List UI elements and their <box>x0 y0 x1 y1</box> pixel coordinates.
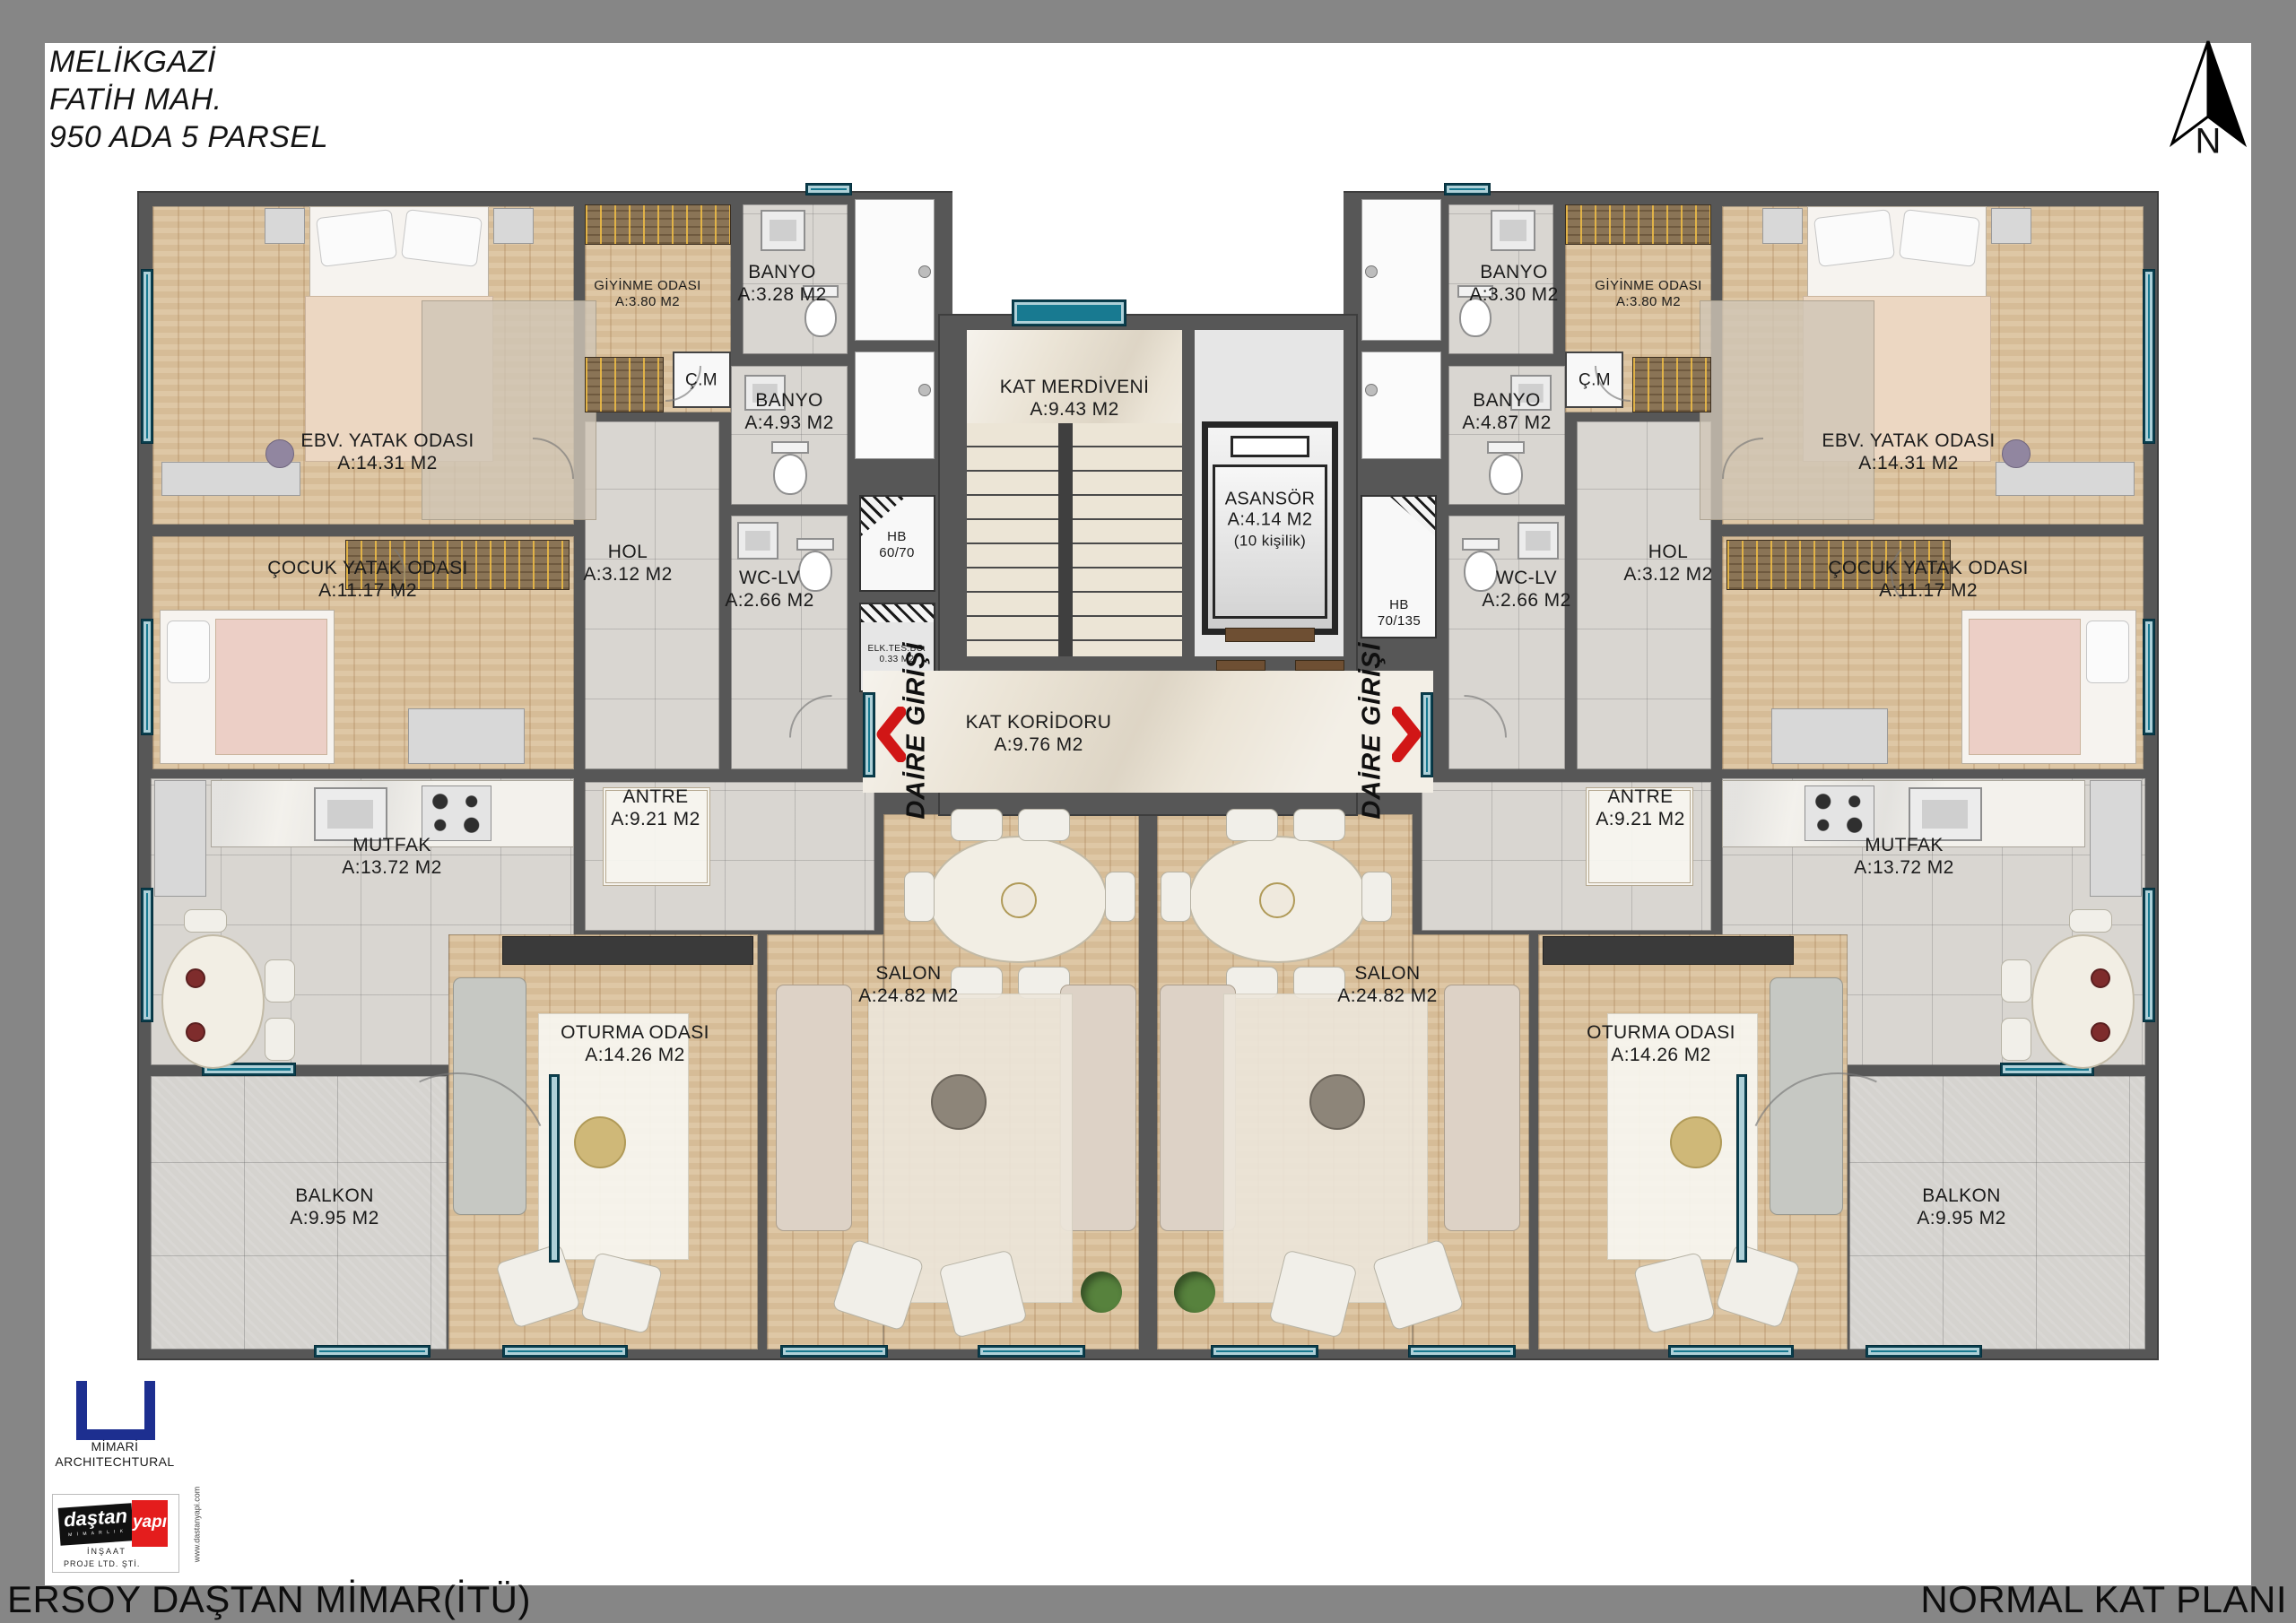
label-child-right: ÇOCUK YATAK ODASIA:11.17 M2 <box>1828 557 2028 602</box>
label-dressing-right: GİYİNME ODASIA:3.80 M2 <box>1595 278 1701 310</box>
plate-icon <box>186 968 205 988</box>
dining-table-kitchen-right <box>2031 934 2135 1069</box>
chair <box>265 1018 295 1061</box>
window-master-right <box>2143 269 2155 444</box>
footer-plan-name: NORMAL KAT PLANI <box>1920 1578 2287 1621</box>
label-stairs: KAT MERDİVENİA:9.43 M2 <box>1000 376 1150 421</box>
window-bath-right <box>1444 183 1491 195</box>
dastan-logo-line1: İNŞAAT <box>87 1547 126 1556</box>
stove-icon <box>422 785 491 841</box>
plant-icon <box>1081 1271 1122 1313</box>
label-salon-right: SALONA:24.82 M2 <box>1337 962 1437 1007</box>
stair-divider <box>1058 423 1073 656</box>
coffee-table-salon-right <box>1309 1074 1365 1130</box>
window-living-right <box>1668 1345 1794 1358</box>
kitchen-sink-icon <box>314 787 387 841</box>
blanket-child-left <box>215 619 327 755</box>
label-cm-right: Ç.M <box>1578 369 1611 392</box>
dastan-logo: daştan M İ M A R L I K yapı www.dastanya… <box>52 1494 179 1573</box>
window-child-left <box>141 619 153 735</box>
kitchen-sink-icon <box>1909 787 1982 841</box>
toilet-icon <box>1462 538 1500 551</box>
closet-dressing-right-top <box>1565 204 1711 245</box>
label-shaft-hb-right: HB70/135 <box>1378 597 1421 629</box>
landing-sill-2 <box>1295 660 1344 671</box>
chair <box>2001 959 2031 1002</box>
nightstand <box>265 208 305 244</box>
elevator-door-sill <box>1225 628 1315 642</box>
shaft-elk-left-hatch <box>861 604 934 622</box>
label-elevator: ASANSÖRA:4.14 M2(10 kişilik) <box>1225 490 1316 551</box>
label-bath2-right: BANYOA:4.87 M2 <box>1462 389 1551 434</box>
chair <box>2069 909 2112 933</box>
label-dressing-left: GİYİNME ODASIA:3.80 M2 <box>594 278 700 310</box>
window-bath-left <box>805 183 852 195</box>
plant-icon <box>1174 1271 1215 1313</box>
plate-icon <box>2091 1022 2110 1042</box>
sink-icon <box>1518 522 1559 560</box>
toilet-icon <box>796 538 834 551</box>
entrance-arrow-right-icon <box>1392 707 1422 762</box>
pillow <box>167 621 210 683</box>
pillow <box>2086 621 2129 683</box>
building-notch <box>952 191 1344 316</box>
shower-head-icon <box>918 384 931 396</box>
desk-child-left <box>408 708 525 764</box>
pillow <box>401 209 483 267</box>
window-balcony-front-left <box>314 1345 430 1358</box>
sofa-salon-left-1 <box>776 985 852 1231</box>
label-child-left: ÇOCUK YATAK ODASIA:11.17 M2 <box>267 557 467 602</box>
label-corridor: KAT KORİDORUA:9.76 M2 <box>966 711 1112 756</box>
toilet-icon <box>1489 454 1523 495</box>
label-living-right: OTURMA ODASIA:14.26 M2 <box>1587 1021 1735 1066</box>
window-salon-right-1 <box>1408 1345 1516 1358</box>
dastan-logo-red-text: yapı <box>132 1500 168 1545</box>
blanket-child-right <box>1969 619 2081 755</box>
balcony-door-left <box>549 1074 560 1263</box>
label-cm-left: Ç.M <box>685 369 717 392</box>
chair <box>265 959 295 1002</box>
pillow <box>1813 209 1895 267</box>
chair <box>904 872 935 922</box>
shower-head-icon <box>918 265 931 278</box>
window-salon-right-2 <box>1211 1345 1318 1358</box>
label-bath1-left: BANYOA:3.28 M2 <box>737 261 826 306</box>
toilet-icon <box>1487 441 1525 454</box>
label-master-right: EBV. YATAK ODASIA:14.31 M2 <box>1822 430 1995 474</box>
stair-window <box>1012 299 1126 326</box>
dastan-logo-line2: PROJE LTD. ŞTİ. <box>64 1559 140 1568</box>
sink-icon <box>761 210 805 251</box>
toilet-icon <box>771 441 809 454</box>
room-hall-right <box>1577 421 1711 769</box>
window-master-left <box>141 269 153 444</box>
title-line-3: 950 ADA 5 PARSEL <box>49 120 328 155</box>
label-bath1-right: BANYOA:3.30 M2 <box>1469 261 1558 306</box>
landing-sill-1 <box>1216 660 1265 671</box>
pouf <box>2002 439 2031 468</box>
nightstand <box>1762 208 1803 244</box>
dining-table-kitchen-left <box>161 934 265 1069</box>
label-kitchen-right: MUTFAKA:13.72 M2 <box>1854 834 1953 879</box>
chair <box>1226 809 1278 841</box>
stove-icon <box>1805 785 1874 841</box>
centerpiece <box>1259 882 1295 918</box>
title-line-2: FATİH MAH. <box>49 82 222 117</box>
shower-right-2 <box>1361 352 1441 459</box>
window-kitchen-right <box>2143 888 2155 1022</box>
mimari-logo-text: MİMARİARCHITECHTURAL <box>55 1439 174 1470</box>
chair <box>1105 872 1135 922</box>
chair <box>184 909 227 933</box>
plate-icon <box>2091 968 2110 988</box>
dastan-logo-red: yapı <box>132 1500 168 1547</box>
fridge-icon <box>2090 780 2142 897</box>
chair <box>1293 809 1345 841</box>
label-entrance-left: DAİRE GİRİŞİ <box>902 642 932 819</box>
stair-flight-left <box>967 423 1058 656</box>
sink-icon <box>1491 210 1535 251</box>
label-wc-left: WC-LVA:2.66 M2 <box>725 567 813 612</box>
window-salon-left-2 <box>978 1345 1085 1358</box>
room-hall-left <box>585 421 719 769</box>
label-entry-left: ANTREA:9.21 M2 <box>611 785 700 830</box>
north-label: N <box>2196 122 2222 162</box>
window-balcony-front-right <box>1865 1345 1982 1358</box>
label-shaft-hb-left: HB60/70 <box>879 529 915 561</box>
dastan-logo-black: daştan M İ M A R L I K <box>58 1503 135 1546</box>
entrance-arrow-left-icon <box>875 707 906 762</box>
chair <box>1161 872 1191 922</box>
sofa-salon-right-1 <box>1444 985 1520 1231</box>
label-hall-left: HOLA:3.12 M2 <box>583 541 672 586</box>
desk-child-right <box>1771 708 1888 764</box>
window-living-left <box>502 1345 628 1358</box>
tv-unit-left <box>502 936 753 965</box>
stair-flight-right <box>1073 423 1182 656</box>
nightstand <box>1991 208 2031 244</box>
label-bath2-left: BANYOA:4.93 M2 <box>744 389 833 434</box>
sink-icon <box>737 522 778 560</box>
pillow <box>1899 209 1980 267</box>
label-entrance-right: DAİRE GİRİŞİ <box>1358 642 1387 819</box>
coffee-table-salon-left <box>931 1074 987 1130</box>
pillow <box>316 209 397 267</box>
label-entry-right: ANTREA:9.21 M2 <box>1596 785 1684 830</box>
label-balcony-left: BALKONA:9.95 M2 <box>290 1185 378 1229</box>
chair <box>1018 809 1070 841</box>
shower-left-2 <box>855 352 935 459</box>
tv-unit-right <box>1543 936 1794 965</box>
label-wc-right: WC-LVA:2.66 M2 <box>1482 567 1570 612</box>
mimari-logo <box>76 1381 155 1440</box>
label-balcony-right: BALKONA:9.95 M2 <box>1917 1185 2005 1229</box>
window-child-right <box>2143 619 2155 735</box>
corridor <box>863 671 1433 793</box>
chair <box>2001 1018 2031 1061</box>
elevator-counterweight <box>1231 436 1309 457</box>
dastan-logo-web: www.dastanyapi.com <box>192 1487 201 1563</box>
centerpiece <box>1001 882 1037 918</box>
pouf <box>265 439 294 468</box>
label-kitchen-left: MUTFAKA:13.72 M2 <box>342 834 441 879</box>
page: MELİKGAZİ FATİH MAH. 950 ADA 5 PARSEL N <box>0 0 2296 1623</box>
label-salon-left: SALONA:24.82 M2 <box>858 962 958 1007</box>
plate-icon <box>186 1022 205 1042</box>
window-salon-left-1 <box>780 1345 888 1358</box>
coffee-table-living-left <box>574 1116 626 1168</box>
title-line-1: MELİKGAZİ <box>49 45 216 80</box>
window-kitchen-left <box>141 888 153 1022</box>
chair <box>1361 872 1392 922</box>
coffee-table-living-right <box>1670 1116 1722 1168</box>
fridge-icon <box>154 780 206 897</box>
label-living-left: OTURMA ODASIA:14.26 M2 <box>561 1021 709 1066</box>
footer-architect: ERSOY DAŞTAN MİMAR(İTÜ) <box>7 1578 531 1621</box>
toilet-icon <box>773 454 807 495</box>
shower-head-icon <box>1365 384 1378 396</box>
label-master-left: EBV. YATAK ODASIA:14.31 M2 <box>300 430 474 474</box>
nightstand <box>493 208 534 244</box>
label-hall-right: HOLA:3.12 M2 <box>1623 541 1712 586</box>
chair <box>951 809 1003 841</box>
closet-dressing-left-top <box>585 204 731 245</box>
shower-head-icon <box>1365 265 1378 278</box>
